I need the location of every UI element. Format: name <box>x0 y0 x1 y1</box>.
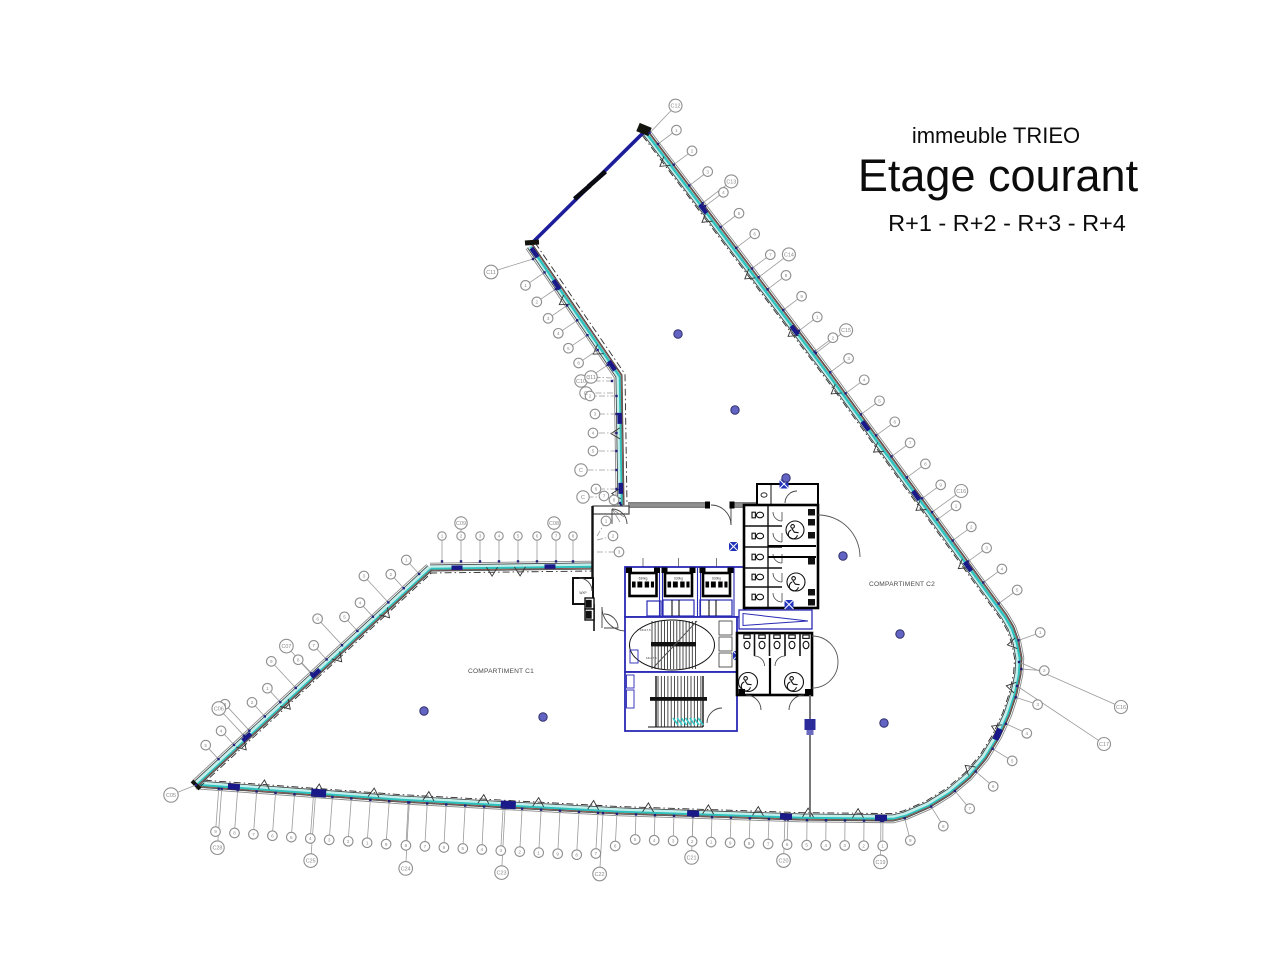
svg-text:3: 3 <box>847 356 850 361</box>
svg-text:C22: C22 <box>595 872 605 878</box>
svg-text:7: 7 <box>252 832 255 837</box>
svg-text:4: 4 <box>824 843 827 848</box>
svg-text:630kg: 630kg <box>674 577 683 581</box>
svg-text:2: 2 <box>862 843 865 848</box>
svg-text:C16: C16 <box>1116 705 1126 711</box>
svg-text:4: 4 <box>1001 567 1004 572</box>
svg-text:6: 6 <box>536 534 539 539</box>
svg-text:8: 8 <box>785 273 788 278</box>
svg-text:2: 2 <box>691 149 694 154</box>
svg-text:1: 1 <box>881 844 884 849</box>
svg-text:7: 7 <box>312 643 315 648</box>
svg-text:8: 8 <box>748 841 751 846</box>
svg-text:3: 3 <box>479 534 482 539</box>
svg-text:C15: C15 <box>841 328 851 334</box>
svg-text:5: 5 <box>592 449 595 454</box>
svg-text:4: 4 <box>863 378 866 383</box>
svg-text:8: 8 <box>575 852 578 857</box>
svg-text:3: 3 <box>843 843 846 848</box>
svg-text:1: 1 <box>605 519 608 524</box>
svg-text:9: 9 <box>939 483 942 488</box>
svg-text:7: 7 <box>909 441 912 446</box>
svg-text:5: 5 <box>567 346 570 351</box>
svg-text:1: 1 <box>955 504 958 509</box>
svg-text:6: 6 <box>271 833 274 838</box>
svg-text:2: 2 <box>589 394 592 399</box>
svg-text:9: 9 <box>270 659 273 664</box>
svg-text:6: 6 <box>577 361 580 366</box>
svg-text:4: 4 <box>220 729 223 734</box>
svg-text:4: 4 <box>557 331 560 336</box>
svg-text:9: 9 <box>214 829 217 834</box>
svg-text:C17: C17 <box>1099 742 1109 748</box>
svg-text:1: 1 <box>816 315 819 320</box>
svg-text:2: 2 <box>832 335 835 340</box>
svg-text:5: 5 <box>634 837 637 842</box>
svg-text:3: 3 <box>594 412 597 417</box>
svg-text:3: 3 <box>224 702 227 707</box>
svg-text:C16: C16 <box>956 489 966 495</box>
svg-text:3: 3 <box>547 316 550 321</box>
svg-text:2: 2 <box>970 525 973 530</box>
svg-text:1: 1 <box>524 283 527 288</box>
svg-text:1: 1 <box>366 840 369 845</box>
svg-text:C13: C13 <box>726 179 736 185</box>
svg-text:C08: C08 <box>549 521 559 527</box>
svg-text:5: 5 <box>290 835 293 840</box>
svg-text:6: 6 <box>316 616 319 621</box>
svg-text:C12: C12 <box>671 104 681 110</box>
svg-text:6: 6 <box>786 842 789 847</box>
svg-text:4: 4 <box>309 836 312 841</box>
svg-text:630kg: 630kg <box>639 577 648 581</box>
svg-text:R+1 - R+2 - R+3 - R+4: R+1 - R+2 - R+3 - R+4 <box>888 210 1126 236</box>
svg-text:5: 5 <box>878 399 881 404</box>
svg-text:4: 4 <box>481 847 484 852</box>
svg-text:7: 7 <box>603 494 606 499</box>
svg-text:1: 1 <box>537 850 540 855</box>
svg-text:5: 5 <box>204 743 207 748</box>
svg-text:7: 7 <box>555 534 558 539</box>
svg-text:5: 5 <box>738 211 741 216</box>
svg-text:5: 5 <box>1011 759 1014 764</box>
svg-text:2: 2 <box>390 572 393 577</box>
svg-text:7: 7 <box>595 851 598 856</box>
svg-text:6: 6 <box>992 784 995 789</box>
svg-text:2: 2 <box>251 700 254 705</box>
svg-text:C23: C23 <box>497 871 507 877</box>
svg-text:C14: C14 <box>784 252 794 258</box>
svg-text:8: 8 <box>572 534 575 539</box>
svg-text:4: 4 <box>592 431 595 436</box>
svg-text:9: 9 <box>729 840 732 845</box>
svg-text:2: 2 <box>1043 668 1046 673</box>
svg-text:C24: C24 <box>401 866 411 872</box>
svg-text:2: 2 <box>691 839 694 844</box>
svg-text:C: C <box>584 391 588 397</box>
svg-text:C11: C11 <box>486 270 496 276</box>
svg-text:3: 3 <box>706 169 709 174</box>
svg-text:5: 5 <box>805 843 808 848</box>
svg-text:6: 6 <box>443 845 446 850</box>
svg-text:8: 8 <box>942 824 945 829</box>
svg-text:16x17,5: 16x17,5 <box>646 656 657 660</box>
svg-text:C: C <box>581 495 585 501</box>
svg-text:6: 6 <box>595 487 598 492</box>
svg-text:9: 9 <box>556 851 559 856</box>
svg-text:5: 5 <box>1016 588 1019 593</box>
svg-text:WXP: WXP <box>579 591 586 595</box>
svg-text:1: 1 <box>441 534 444 539</box>
svg-text:8: 8 <box>297 657 300 662</box>
svg-text:5: 5 <box>517 534 520 539</box>
svg-text:3: 3 <box>1036 702 1039 707</box>
svg-text:16x17,5: 16x17,5 <box>640 628 651 632</box>
svg-text:4: 4 <box>722 190 725 195</box>
svg-text:C11: C11 <box>586 375 596 381</box>
svg-text:C20: C20 <box>779 858 789 864</box>
svg-text:1: 1 <box>1039 630 1042 635</box>
svg-text:3: 3 <box>500 848 503 853</box>
svg-text:7: 7 <box>968 806 971 811</box>
svg-text:C10: C10 <box>576 379 586 385</box>
svg-text:9: 9 <box>385 842 388 847</box>
svg-text:2: 2 <box>536 300 539 305</box>
svg-text:4: 4 <box>653 838 656 843</box>
svg-text:1: 1 <box>710 840 713 845</box>
svg-text:3: 3 <box>672 838 675 843</box>
svg-text:1: 1 <box>405 558 408 563</box>
svg-text:2: 2 <box>518 849 521 854</box>
svg-text:C07: C07 <box>281 644 291 650</box>
svg-text:COMPARTIMENT C2: COMPARTIMENT C2 <box>869 581 935 588</box>
svg-text:8: 8 <box>405 843 408 848</box>
svg-text:C06: C06 <box>214 706 224 712</box>
svg-text:630kg: 630kg <box>712 577 721 581</box>
svg-text:3: 3 <box>328 838 331 843</box>
svg-text:2: 2 <box>460 534 463 539</box>
svg-text:9: 9 <box>909 838 912 843</box>
svg-text:9: 9 <box>800 294 803 299</box>
svg-text:3: 3 <box>618 550 621 555</box>
svg-text:7: 7 <box>767 842 770 847</box>
svg-text:8: 8 <box>924 462 927 467</box>
svg-text:8: 8 <box>613 498 616 503</box>
svg-text:6: 6 <box>894 420 897 425</box>
svg-text:C28: C28 <box>212 846 222 852</box>
svg-text:C: C <box>579 468 583 474</box>
svg-text:C09: C09 <box>456 521 466 527</box>
svg-text:2: 2 <box>347 839 350 844</box>
svg-text:5: 5 <box>343 615 346 620</box>
svg-text:Etage courant: Etage courant <box>858 150 1139 201</box>
svg-text:4: 4 <box>498 534 501 539</box>
svg-text:immeuble TRIEO: immeuble TRIEO <box>912 123 1080 148</box>
svg-text:1: 1 <box>675 128 678 133</box>
svg-text:3: 3 <box>363 574 366 579</box>
svg-text:C21: C21 <box>687 855 697 861</box>
svg-text:7: 7 <box>769 252 772 257</box>
svg-text:1: 1 <box>266 686 269 691</box>
svg-text:C05: C05 <box>166 793 176 799</box>
svg-text:C25: C25 <box>306 859 316 865</box>
svg-text:3: 3 <box>985 546 988 551</box>
svg-text:2: 2 <box>612 534 615 539</box>
svg-text:7: 7 <box>424 844 427 849</box>
svg-text:6: 6 <box>614 844 617 849</box>
svg-text:5: 5 <box>462 846 465 851</box>
svg-text:8: 8 <box>233 831 236 836</box>
svg-text:COMPARTIMENT C1: COMPARTIMENT C1 <box>468 668 534 675</box>
svg-text:4: 4 <box>359 600 362 605</box>
svg-text:4: 4 <box>1026 731 1029 736</box>
svg-text:C19: C19 <box>876 860 886 866</box>
svg-text:6: 6 <box>753 232 756 237</box>
